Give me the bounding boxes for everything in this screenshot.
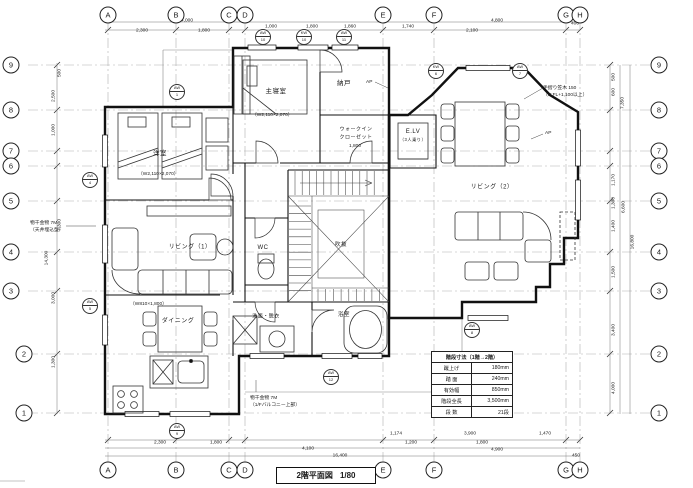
dimension-label: 3,400 (612, 324, 617, 336)
dimension-label: 7,350 (621, 97, 626, 109)
table-row: 蹴上げ 180mm (432, 363, 512, 374)
grid-number-right-8: 8 (651, 102, 668, 119)
grid-letter-bottom-D: D (237, 462, 254, 479)
dimension-label: 4,800 (491, 19, 503, 24)
dimension-label: 1,000 (52, 124, 57, 136)
grid-letter-bottom-E: E (375, 462, 392, 479)
grid-number-right-3: 3 (651, 283, 668, 300)
grid-letter-top-E: E (375, 7, 392, 24)
grid-number-right-2: 2 (651, 346, 668, 363)
window-marker-KW-6: KW6 (428, 63, 444, 79)
drawing-scale: 1/80 (340, 471, 356, 480)
window-marker-code: AW (341, 30, 347, 35)
window-marker-number: 7 (513, 70, 527, 77)
stair-riser-label: 蹴上げ (432, 363, 472, 373)
room-label-void: 吹抜 (335, 240, 347, 248)
grid-number-right-1: 1 (651, 405, 668, 422)
room-label-wic-line2: クローゼット (339, 134, 372, 141)
stair-count-value: 21段 (472, 407, 512, 417)
annotation: （W2,110×2,070） (138, 170, 179, 177)
annotation: 1,800 (349, 144, 361, 149)
stair-table-title: 階段寸法（1階→2階） (432, 352, 512, 363)
window-marker-AW-1: AW1 (169, 84, 185, 100)
stair-length-value: 3,500mm (472, 396, 512, 406)
grid-letter-bottom-H: H (572, 462, 589, 479)
window-marker-code: AW (174, 85, 180, 90)
room-label-dining: ダイニング (162, 316, 195, 325)
room-label-living-1: リビング（1） (169, 242, 212, 251)
dimension-label: 2,500 (52, 90, 57, 102)
window-marker-code: KW (433, 64, 439, 69)
dimension-label: 450 (572, 454, 580, 459)
dimension-label: 16,800 (631, 235, 636, 250)
window-marker-AW-10: AW10 (255, 29, 271, 45)
window-marker-AW-9: AW9 (169, 423, 185, 439)
grid-number-left-5: 5 (3, 193, 20, 210)
title-block: 2階平面図 1/80 (276, 467, 376, 484)
window-marker-AW-12: AW12 (323, 369, 339, 385)
dimension-label: 4,100 (302, 447, 314, 452)
dimension-label: 500 (58, 69, 63, 77)
room-label-living-2: リビング（2） (471, 182, 514, 191)
dimension-label: 1,800 (306, 25, 318, 30)
grid-number-left-3: 3 (3, 283, 20, 300)
window-marker-code: AW (87, 173, 93, 178)
annotation: （W810×1,800） (130, 300, 167, 307)
table-row: 段 数 21段 (432, 407, 512, 417)
grid-number-right-6: 6 (651, 158, 668, 175)
window-marker-code: AW (174, 424, 180, 429)
dimension-label: 16,400 (333, 454, 348, 459)
room-label-elevator: E.LV (406, 129, 421, 135)
dimension-label: 1,470 (539, 432, 551, 437)
dimension-label: 1,800 (198, 29, 210, 34)
dimension-label: 6,600 (622, 201, 627, 213)
annotation: AP (366, 80, 372, 85)
window-marker-number: 4 (83, 179, 97, 186)
window-marker-number: 9 (170, 430, 184, 437)
dimension-label: 1,400 (612, 220, 617, 232)
stair-width-value: 850mm (472, 385, 512, 395)
drawing-title: 2階平面図 (296, 470, 332, 481)
dimension-label: 1,300 (612, 197, 617, 209)
dimension-label: 1,174 (390, 432, 402, 437)
window-marker-AW-7: AW7 (512, 63, 528, 79)
table-row: 踏 面 240mm (432, 374, 512, 385)
grid-number-left-6: 6 (3, 158, 20, 175)
window-marker-AW-8: AW8 (464, 322, 480, 338)
window-marker-number: 5 (83, 305, 97, 312)
grid-letter-bottom-F: F (426, 462, 443, 479)
dimension-label: 2,300 (136, 29, 148, 34)
window-marker-AW-4: AW4 (82, 172, 98, 188)
annotation: （W2,110×2,070） (252, 111, 293, 118)
room-label-elevator-sub: （3人乗り） (400, 137, 426, 143)
dimension-label: 1,800 (210, 441, 222, 446)
grid-letter-bottom-B: B (168, 462, 185, 479)
dimension-label: 1,800 (476, 441, 488, 446)
window-marker-code: AW (328, 370, 334, 375)
dimension-label: 600 (612, 88, 617, 96)
annotation: （H:FL+1,100以上） (543, 91, 587, 98)
annotation: （1/Fバルコニー上部） (250, 401, 300, 408)
window-marker-number: 6 (429, 70, 443, 77)
dimension-label: 2,100 (466, 29, 478, 34)
floor-plan-sheet: 2階平面図 1/80 階段寸法（1階→2階） 蹴上げ 180mm 踏 面 240… (0, 0, 693, 488)
dimension-label: 14,300 (45, 251, 50, 266)
grid-number-left-2: 2 (16, 346, 33, 363)
annotation: AP (545, 131, 551, 136)
stairs (288, 171, 389, 302)
dimension-label: 1,170 (612, 174, 617, 186)
grid-letter-bottom-C: C (221, 462, 238, 479)
annotation: 物干金物 7M (30, 219, 57, 226)
table-row: 階段全長 3,500mm (432, 396, 512, 407)
room-label-storage: 納戸 (337, 77, 351, 87)
dimension-label: 3,000 (52, 292, 57, 304)
window-marker-code: KW (301, 30, 307, 35)
stair-tread-value: 240mm (472, 374, 512, 384)
window-marker-KW-10: KW10 (296, 29, 312, 45)
dimension-label: 3,900 (464, 432, 476, 437)
window-marker-AW-5: AW5 (82, 298, 98, 314)
grid-number-right-5: 5 (651, 193, 668, 210)
dimension-label: 1,200 (405, 441, 417, 446)
room-label-washroom: 洗面・脱衣 (252, 313, 280, 320)
stair-length-label: 階段全長 (432, 396, 472, 406)
window-marker-number: 8 (465, 329, 479, 336)
grid-number-left-1: 1 (16, 405, 33, 422)
grid-letter-bottom-A: A (100, 462, 117, 479)
grid-number-left-9: 9 (3, 57, 20, 74)
stair-count-label: 段 数 (432, 407, 472, 417)
dimension-label: 2,300 (154, 441, 166, 446)
window-marker-number: 10 (297, 36, 311, 43)
room-label-western-room: 洋室 (153, 147, 167, 157)
dimension-label: 4,000 (612, 382, 617, 394)
dimension-label: 500 (612, 73, 617, 81)
stair-width-label: 有効幅 (432, 385, 472, 395)
window-marker-code: AW (87, 299, 93, 304)
table-row: 有効幅 850mm (432, 385, 512, 396)
grid-number-left-8: 8 (3, 102, 20, 119)
window-marker-code: AW (469, 323, 475, 328)
grid-letter-top-C: C (221, 7, 238, 24)
dimension-label: 1,740 (402, 25, 414, 30)
stair-tread-label: 踏 面 (432, 374, 472, 384)
room-label-master-bedroom: 主寝室 (266, 85, 287, 95)
dimension-label: 1,500 (612, 266, 617, 278)
grid-number-right-9: 9 (651, 57, 668, 74)
window-marker-number: 1 (170, 91, 184, 98)
dimension-label: 1,000 (265, 25, 277, 30)
stair-riser-value: 180mm (472, 363, 512, 373)
window-marker-number: 12 (324, 376, 338, 383)
window-marker-code: AW (260, 30, 266, 35)
grid-number-left-4: 4 (3, 244, 20, 261)
grid-letter-top-B: B (168, 7, 185, 24)
room-label-wc: WC (258, 245, 269, 251)
grid-letter-top-H: H (572, 7, 589, 24)
grid-letter-top-A: A (100, 7, 117, 24)
stair-spec-table: 階段寸法（1階→2階） 蹴上げ 180mm 踏 面 240mm 有効幅 850m… (431, 351, 513, 418)
window-marker-number: 10 (256, 36, 270, 43)
dimension-label: 7,300 (58, 219, 63, 231)
grid-letter-top-D: D (237, 7, 254, 24)
grid-number-right-4: 4 (651, 244, 668, 261)
room-label-bathroom: 浴室 (338, 310, 350, 318)
grid-letter-top-F: F (426, 7, 443, 24)
dimension-label: 1,300 (52, 356, 57, 368)
window-marker-code: AW (517, 64, 523, 69)
annotation: 手摺り笠木 150 (543, 84, 576, 91)
window-marker-AW-11: AW11 (336, 29, 352, 45)
room-label-wic-line1: ウォークイン (339, 126, 372, 133)
window-marker-number: 11 (337, 36, 351, 43)
annotation: 物干金物 7M (250, 394, 277, 401)
dimension-label: 4,900 (491, 448, 503, 453)
